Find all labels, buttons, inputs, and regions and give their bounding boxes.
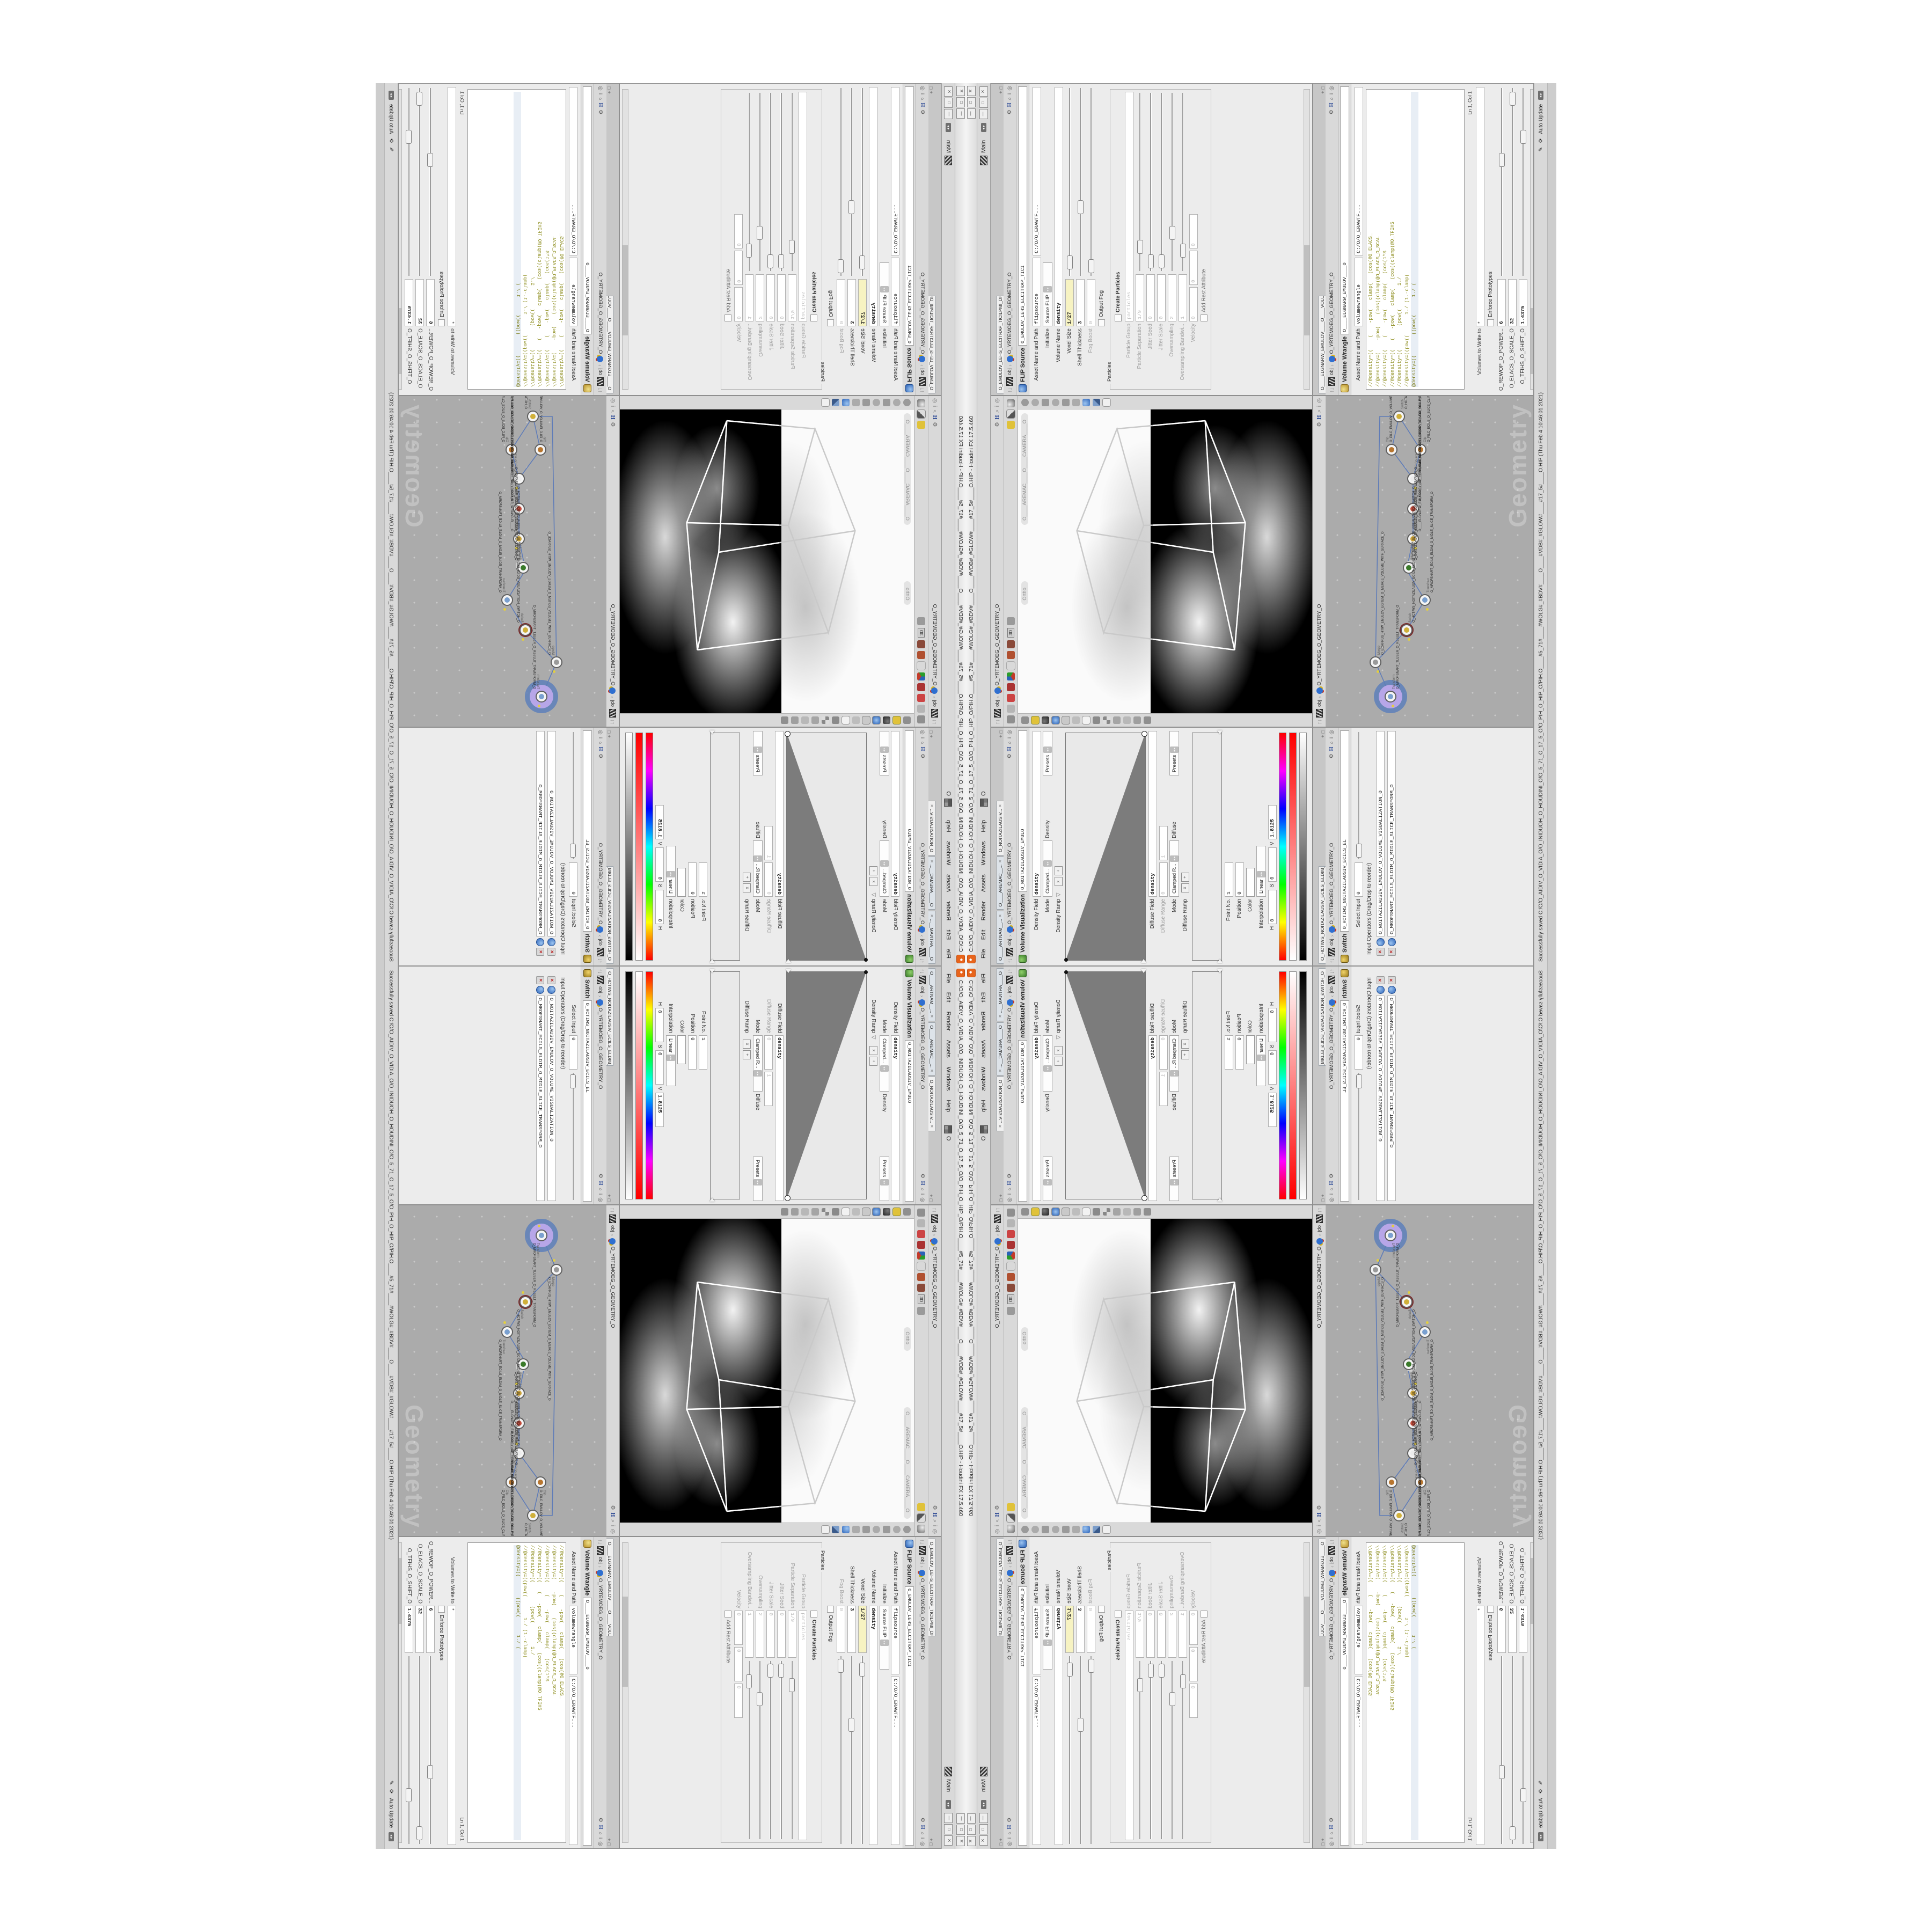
refresh-icon[interactable]: ⟳	[389, 138, 394, 143]
oversampling-bandwidth-input[interactable]: 1	[1179, 1611, 1187, 1658]
asset-path-field[interactable]: C:/O/O_ERAWTF...	[1355, 87, 1363, 255]
node-transform[interactable]	[1419, 594, 1431, 606]
node-flag[interactable]	[1408, 638, 1410, 641]
saturation-gradient-slider[interactable]	[635, 971, 643, 1199]
oversampling-input[interactable]: 2	[756, 274, 765, 321]
network-canvas[interactable]: Geometry	[1326, 1205, 1533, 1536]
menu-scroll-chip[interactable]: ◂ ▸	[946, 1800, 951, 1809]
oversampling-slider[interactable]	[757, 1660, 764, 1840]
display-option-icon[interactable]	[1031, 1526, 1039, 1533]
restore-button[interactable]: □	[956, 1825, 965, 1835]
density-ramp-widget[interactable]	[1065, 971, 1146, 1199]
gear-icon[interactable]: ⚙	[1007, 1174, 1013, 1179]
select-arrow-icon[interactable]	[917, 617, 925, 625]
houdini-help-icon[interactable]: H	[919, 103, 925, 107]
info-icon[interactable]: i	[932, 1525, 938, 1526]
asset-path-field[interactable]: C:/O/O_ERAWTF...	[569, 87, 578, 255]
pane-split-icon[interactable]: +	[998, 91, 1004, 93]
oversampling-slider[interactable]	[1168, 1660, 1176, 1840]
node-name-field[interactable]: O_HCTIWS_NOITAZILAUSIV_ECILS_EL	[1340, 1000, 1349, 1202]
power-slider[interactable]	[1498, 87, 1505, 277]
particle-group-input[interactable]: particles	[799, 92, 808, 321]
status-scroll-chip[interactable]: ◂ ▸	[1538, 91, 1543, 100]
velocity-x-input[interactable]: 0	[735, 1611, 743, 1645]
gear-icon[interactable]: ⚙	[1329, 1818, 1335, 1823]
saturation-input[interactable]: 0	[1268, 847, 1277, 882]
target-icon[interactable]: ◎	[597, 1841, 603, 1846]
particle-separation-slider[interactable]	[789, 92, 796, 272]
blocks-icon[interactable]	[801, 1208, 809, 1216]
pen-icon[interactable]	[1144, 1208, 1151, 1216]
tab-visualization[interactable]: O_NOITAZILAUSIV...✕	[928, 801, 935, 855]
search-icon[interactable]: ⌕	[1329, 1832, 1335, 1835]
node-merge[interactable]	[551, 1264, 562, 1276]
breadcrumb[interactable]: O_YRTEMOEG_O_GEOMETRY_O	[919, 273, 925, 354]
pane-split-icon[interactable]: +	[928, 91, 934, 93]
enforce-prototypes-checkbox[interactable]	[1487, 319, 1494, 326]
frame-icon[interactable]	[822, 1526, 829, 1533]
display-option-icon[interactable]	[903, 399, 911, 406]
node-transform[interactable]	[501, 594, 513, 606]
density-mode-dropdown[interactable]: Clamped...◂ ▸	[1043, 840, 1052, 897]
tab-close-icon[interactable]: ✕	[930, 860, 934, 863]
pin-arrows-icon[interactable]: ↑↓	[919, 388, 926, 393]
power-input[interactable]: 6	[1497, 279, 1506, 326]
point-no-input[interactable]: 1	[699, 1035, 708, 1070]
display-option-icon[interactable]	[862, 1526, 870, 1533]
diffuse-range-max[interactable]: 1	[765, 1072, 773, 1106]
voxel-size-slider[interactable]	[1066, 1655, 1073, 1845]
camera-pill[interactable]: O____AREMAC____O____CAMERA____O	[1021, 1407, 1028, 1519]
breadcrumb[interactable]: O_YRTEMOEG_O_GEOMETRY_O	[610, 604, 616, 686]
view-mode-icon[interactable]	[1052, 716, 1059, 724]
title-bar[interactable]: C:/O/O_AIDIV_O_VIDIA_O/O_INIDUOH_O_HOUDI…	[966, 966, 977, 1849]
houdini-help-icon[interactable]: H	[610, 1513, 616, 1517]
jitter-seed-slider[interactable]	[778, 92, 786, 272]
curve-icon[interactable]	[811, 1208, 819, 1216]
desktop-selector[interactable]: Main	[980, 140, 987, 153]
asset-name-field[interactable]: flipsource	[891, 1606, 900, 1674]
ramp-left-marker[interactable]	[786, 969, 791, 973]
pin-arrows-icon[interactable]: ↑↓	[597, 958, 604, 963]
child-restore-button[interactable]: □	[944, 1824, 953, 1834]
blue-sphere-icon[interactable]	[1082, 1526, 1090, 1533]
minimize-button[interactable]: —	[956, 1813, 965, 1824]
target-icon[interactable]: ◎	[994, 398, 1000, 403]
display-option-icon[interactable]	[1042, 1526, 1049, 1533]
close-button[interactable]: ✕	[956, 1836, 965, 1846]
breadcrumb[interactable]: O_YRTEMOEG_O_GEOMETRY_O	[1329, 843, 1335, 925]
interpolation-dropdown[interactable]: Linear◂ ▸	[666, 846, 676, 897]
rotate-icon[interactable]	[917, 1273, 925, 1281]
node-flag[interactable]	[503, 608, 506, 611]
shading-mode-icon[interactable]	[917, 1514, 925, 1522]
dark-sphere-icon[interactable]	[883, 1208, 890, 1216]
pane-float-icon[interactable]: □	[606, 86, 612, 89]
smooth-shade-icon[interactable]	[1007, 399, 1015, 407]
pan-tool-icon[interactable]	[1007, 705, 1015, 713]
text-abc-icon[interactable]	[852, 716, 860, 724]
asset-name-field[interactable]: flipsource	[1033, 1606, 1041, 1674]
pin-tool-icon[interactable]	[1007, 683, 1015, 691]
diffuse-mode-dropdown[interactable]: Clamped R...◂ ▸	[1169, 840, 1179, 897]
scale-slider[interactable]	[416, 1655, 424, 1845]
particle-separation-slider[interactable]	[1136, 92, 1144, 272]
context-label[interactable]: obj	[1007, 986, 1013, 993]
orbit-icon[interactable]	[1007, 1284, 1015, 1292]
diffuse-mode-dropdown[interactable]: Clamped R...◂ ▸	[753, 1035, 763, 1092]
shell-thickness-input[interactable]: 3	[848, 279, 857, 326]
info-icon[interactable]: i	[597, 93, 603, 94]
particle-separation-input[interactable]: 1/9	[1136, 1611, 1144, 1658]
pen-icon[interactable]	[1144, 716, 1151, 724]
target-icon[interactable]: ◎	[919, 730, 925, 735]
menu-assets[interactable]: Assets	[943, 870, 953, 896]
volumes-to-write-input[interactable]: *	[448, 1606, 457, 1845]
select-tool-icon[interactable]	[1021, 716, 1029, 724]
density-mode-dropdown[interactable]: Clamped...◂ ▸	[1043, 1035, 1052, 1092]
tab-close-icon[interactable]: ✕	[930, 1125, 934, 1128]
node-flag[interactable]	[522, 638, 524, 641]
lasso-shade-icon[interactable]	[1007, 421, 1015, 429]
houdini-help-icon[interactable]: H	[932, 415, 938, 420]
particle-separation-input[interactable]: 1/9	[788, 274, 797, 321]
network-canvas[interactable]: Geometry	[1326, 396, 1533, 727]
menu-render[interactable]: Render	[979, 897, 989, 925]
network-canvas[interactable]: Geometry	[399, 1205, 606, 1536]
display-option-icon[interactable]	[1031, 399, 1039, 406]
display-option-icon[interactable]	[852, 399, 860, 406]
density-presets-dropdown[interactable]: Presets◂ ▸	[880, 1157, 889, 1201]
diffuse-range-min[interactable]: 0	[1159, 862, 1168, 897]
camera-pill[interactable]: O____AREMAC____O____CAMERA____O	[1021, 413, 1028, 525]
pane-float-icon[interactable]: □	[928, 730, 934, 733]
diffuse-ramp-widget[interactable]	[1192, 971, 1222, 1199]
tab-visualization[interactable]: O_NOITAZILAUSIV...✕	[997, 801, 1004, 855]
menu-help[interactable]: Help	[943, 816, 953, 837]
breadcrumb[interactable]: O_YRTEMOEG_O_GEOMETRY_O	[1316, 604, 1322, 686]
target-icon[interactable]: ◎	[932, 398, 938, 403]
display-option-icon[interactable]	[1062, 399, 1070, 406]
ramp-right-marker[interactable]	[709, 730, 715, 734]
fog-boost-slider[interactable]	[1087, 1655, 1095, 1845]
tab-mantra[interactable]: O____ARTNAM__...✕	[997, 911, 1004, 964]
search-icon[interactable]: ⌕	[597, 1188, 603, 1191]
houdini-help-icon[interactable]: H	[1007, 1825, 1013, 1829]
info-icon[interactable]: i	[610, 406, 616, 407]
info-icon[interactable]: i	[994, 1525, 1000, 1526]
houdini-help-icon[interactable]: H	[994, 1513, 1000, 1517]
node-flag[interactable]	[1377, 670, 1379, 673]
density-mode-dropdown[interactable]: Clamped...◂ ▸	[880, 1035, 889, 1092]
lasso-shade-icon[interactable]	[917, 421, 925, 429]
view-tool-icon[interactable]	[1007, 1209, 1015, 1217]
breadcrumb[interactable]: O_YRTEMOEG_O_GEOMETRY_O	[1329, 1578, 1335, 1660]
menu-scroll-chip[interactable]: ◂ ▸	[981, 1800, 986, 1809]
close-button[interactable]: ✕	[956, 86, 965, 96]
pen-icon[interactable]	[781, 716, 788, 724]
density-field-input[interactable]: density	[1033, 1035, 1041, 1201]
node-name-field[interactable]: O____ELGNARW_EMULOV____O	[583, 86, 592, 334]
houdini-help-icon[interactable]: H	[1329, 103, 1335, 107]
node-geometry-switch[interactable]	[527, 1510, 539, 1521]
display-option-icon[interactable]	[903, 1526, 911, 1533]
axis-gizmo-icon[interactable]	[917, 1252, 925, 1260]
fog-boost-input[interactable]: 0	[1087, 1606, 1095, 1653]
velocity-y-input[interactable]: 0	[735, 1647, 743, 1681]
menu-edit[interactable]: Edit	[979, 925, 989, 944]
info-icon[interactable]: i	[1316, 1525, 1322, 1526]
voxel-size-input[interactable]: 1/27	[859, 279, 867, 326]
edit-icon[interactable]: ✎	[1538, 147, 1544, 151]
ramp-point-start[interactable]	[1064, 970, 1068, 974]
pane-float-icon[interactable]: □	[1320, 86, 1326, 89]
tab-close-icon[interactable]: ✕	[930, 1015, 934, 1018]
pan-tool-icon[interactable]	[917, 705, 925, 713]
interpolation-dropdown[interactable]: Linear◂ ▸	[1256, 1035, 1266, 1086]
character-icon[interactable]	[1062, 1208, 1070, 1216]
initialize-dropdown[interactable]: Source FLIP◂ ▸	[880, 262, 889, 326]
node-name-field[interactable]: O_NOITAZILAUSIV_EMULO	[905, 730, 914, 892]
restore-button[interactable]: □	[967, 1825, 976, 1835]
edit-icon[interactable]: ✎	[389, 147, 394, 151]
desktop-grid-icon[interactable]	[980, 799, 988, 807]
horizontal-scrollbar[interactable]	[1304, 89, 1310, 390]
jitter-seed-input[interactable]: 0	[1146, 1611, 1155, 1658]
select-input-slider[interactable]	[570, 1072, 577, 1201]
pane-float-icon[interactable]: □	[998, 1843, 1004, 1846]
tab-switch[interactable]: O_HCTIWS_NOITAZILAUSIV_ECILS_ELDIM_O_MID…	[606, 866, 613, 964]
output-fog-checkbox[interactable]	[827, 319, 834, 326]
tab-close-icon[interactable]: ✕	[998, 1125, 1002, 1128]
target-icon[interactable]: ◎	[919, 1841, 925, 1846]
node-merge[interactable]	[1370, 656, 1381, 668]
asset-path-field[interactable]: C:/O/O_ERAWTF...	[569, 1677, 578, 1845]
velocity-x-input[interactable]: 0	[1189, 1611, 1198, 1645]
breadcrumb[interactable]: O_YRTEMOEG_O_GEOMETRY_O	[919, 1008, 925, 1089]
info-icon[interactable]: i	[1007, 737, 1013, 738]
white-square-icon[interactable]	[1082, 716, 1090, 724]
fog-boost-slider[interactable]	[838, 1655, 845, 1845]
position-input[interactable]: 0	[689, 862, 697, 897]
shift-input[interactable]: 1.4375	[405, 1606, 414, 1653]
rotate-icon[interactable]	[1007, 1273, 1015, 1281]
curve-icon[interactable]	[811, 716, 819, 724]
scale-input[interactable]: 32	[1508, 1606, 1517, 1653]
power-slider[interactable]	[1498, 1655, 1505, 1845]
search-icon[interactable]: ⌕	[1316, 1519, 1322, 1523]
houdini-help-icon[interactable]: H	[597, 1181, 603, 1185]
display-option-icon[interactable]	[1021, 399, 1029, 406]
menu-file[interactable]: File	[943, 969, 953, 987]
gear-icon[interactable]: ⚙	[597, 753, 603, 758]
asset-path-field[interactable]: C:/O/O_ERAWTF...	[1033, 1677, 1041, 1845]
pane-split-icon[interactable]: +	[1320, 735, 1326, 737]
tripod-icon[interactable]	[1093, 1208, 1100, 1216]
pane-split-icon[interactable]: +	[998, 1194, 1004, 1197]
voxel-size-slider[interactable]	[1066, 87, 1073, 277]
tripod-icon[interactable]	[832, 1208, 839, 1216]
asset-path-field[interactable]: C:/O/O_ERAWTF...	[1355, 1677, 1363, 1845]
ramp-point-end[interactable]	[785, 1195, 791, 1201]
gear-icon[interactable]: ⚙	[919, 1818, 925, 1823]
select-tool-icon[interactable]	[903, 716, 911, 724]
initialize-dropdown[interactable]: Source FLIP◂ ▸	[1043, 1606, 1052, 1670]
pin-arrows-icon[interactable]: ↑↓	[919, 1539, 926, 1544]
saturation-input[interactable]: 0	[1268, 1050, 1277, 1085]
operator-pick-icon[interactable]	[1388, 986, 1396, 994]
pen-icon[interactable]	[781, 1208, 788, 1216]
breadcrumb[interactable]: O_YRTEMOEG_O_GEOMETRY_O	[994, 604, 1000, 686]
power-slider[interactable]	[427, 1655, 435, 1845]
key-icon[interactable]	[791, 716, 799, 724]
checker-icon[interactable]	[1103, 1208, 1110, 1216]
enforce-prototypes-checkbox[interactable]	[438, 319, 445, 326]
blue-sphere-icon[interactable]	[1082, 399, 1090, 406]
auto-update-selector[interactable]: Auto Update	[1538, 1798, 1544, 1828]
pane-float-icon[interactable]: □	[928, 1199, 934, 1202]
shell-thickness-input[interactable]: 3	[848, 1606, 857, 1653]
orbit-icon[interactable]	[917, 1284, 925, 1292]
checker-icon[interactable]	[822, 1208, 829, 1216]
pane-float-icon[interactable]: □	[606, 1199, 612, 1202]
tab-volume-wrangle[interactable]: O____ELGNARW_EMULOV____O____VOLUME_WRANG…	[1319, 1539, 1326, 1636]
node-geometry-switch[interactable]	[527, 411, 539, 422]
status-scroll-chip[interactable]: ◂ ▸	[389, 1832, 394, 1841]
vex-snippet-editor[interactable]: //@density=(( ( -pow( clamp( (cos(@O_ELA…	[467, 89, 566, 390]
select-input-slider[interactable]	[1355, 731, 1363, 860]
search-icon[interactable]: ⌕	[932, 1519, 938, 1523]
title-bar[interactable]: C:/O/O_AIDIV_O_VIDIA_O/O_INIDUOH_O_HOUDI…	[955, 83, 966, 966]
lasso-shade-icon[interactable]	[917, 1503, 925, 1511]
info-icon[interactable]: i	[597, 737, 603, 738]
ramp-delete-point-button[interactable]: x	[743, 1040, 751, 1049]
tripod-icon[interactable]	[1093, 716, 1100, 724]
menu-file[interactable]: File	[979, 969, 989, 987]
node-flag[interactable]	[538, 705, 540, 707]
key-icon[interactable]	[1133, 1208, 1141, 1216]
breadcrumb[interactable]: O_YRTEMOEG_O_GEOMETRY_O	[1007, 843, 1013, 925]
shell-thickness-input[interactable]: 3	[1076, 1606, 1085, 1653]
pin-tool-icon[interactable]	[917, 1241, 925, 1249]
blue-cube-icon[interactable]	[832, 1526, 839, 1533]
search-icon[interactable]: ⌕	[1007, 1832, 1013, 1835]
power-input[interactable]: 6	[427, 279, 435, 326]
dark-sphere-icon[interactable]	[883, 716, 890, 724]
menu-file[interactable]: File	[943, 945, 953, 963]
text-abc-icon[interactable]	[852, 1208, 860, 1216]
diffuse-presets-dropdown[interactable]: Presets◂ ▸	[1169, 1157, 1179, 1201]
voxel-size-slider[interactable]	[859, 87, 867, 277]
display-option-icon[interactable]	[1052, 1526, 1059, 1533]
hue-input[interactable]: 0	[1268, 890, 1277, 924]
oversampling-bandwidth-slider[interactable]	[1179, 92, 1187, 272]
desktop-grid-icon[interactable]	[945, 1125, 953, 1133]
menu-windows[interactable]: Windows	[943, 1063, 953, 1095]
info-icon[interactable]: i	[1007, 93, 1013, 94]
pin-arrows-icon[interactable]: ↑↓	[1007, 388, 1013, 393]
value-input[interactable]: 1.8125	[1268, 805, 1277, 839]
status-scroll-chip[interactable]: ◂ ▸	[1538, 1832, 1543, 1841]
scale-slider[interactable]	[1509, 1655, 1516, 1845]
search-icon[interactable]: ⌕	[919, 741, 925, 744]
input-operator-field[interactable]: O_MROFSNART_ECILS_ELDIM_O_MIDLE_SLICE_TR…	[1387, 731, 1396, 936]
shading-mode-icon[interactable]	[1007, 1514, 1015, 1522]
pan-tool-icon[interactable]	[917, 1219, 925, 1227]
value-input[interactable]: 1.8125	[656, 805, 664, 839]
volume-name-input[interactable]: density	[1055, 87, 1063, 326]
key-icon[interactable]	[791, 1208, 799, 1216]
diffuse-presets-dropdown[interactable]: Presets◂ ▸	[753, 731, 763, 775]
tab-close-icon[interactable]: ✕	[998, 860, 1002, 863]
ramp-point-end[interactable]	[785, 731, 791, 737]
hue-input[interactable]: 0	[1268, 1008, 1277, 1042]
text-abc-icon[interactable]	[1072, 716, 1080, 724]
scale-input[interactable]: 32	[416, 279, 425, 326]
node-switch[interactable]	[519, 624, 531, 636]
pose-tool-icon[interactable]	[917, 1230, 925, 1238]
node-merge[interactable]	[1370, 1264, 1381, 1276]
velocity-y-input[interactable]: 0	[1189, 251, 1198, 285]
gear-icon[interactable]: ⚙	[994, 422, 1000, 427]
tab-mantra[interactable]: O____ARTNAM__...✕	[928, 911, 935, 964]
velocity-y-input[interactable]: 0	[735, 251, 743, 285]
color-swatch[interactable]	[1246, 868, 1255, 897]
tab-volume-wrangle[interactable]: O____ELGNARW_EMULOV____O____VOLUME_WRANG…	[606, 1539, 613, 1636]
menu-edit[interactable]: Edit	[943, 925, 953, 944]
menu-render[interactable]: Render	[943, 897, 953, 925]
target-icon[interactable]: ◎	[610, 1529, 616, 1534]
diffuse-field-input[interactable]: density	[1148, 1035, 1157, 1201]
ramp-collapse-icon[interactable]: ▽	[870, 1035, 876, 1040]
node-name-field[interactable]: O_NOITAZILAUSIV_EMULO	[1018, 730, 1027, 892]
search-icon[interactable]: ⌕	[994, 409, 1000, 413]
add-rest-checkbox[interactable]	[1201, 314, 1207, 321]
ramp-point-start[interactable]	[864, 970, 868, 974]
node-clip-1[interactable]	[1386, 444, 1397, 456]
pin-arrows-icon[interactable]: ↑↓	[597, 1539, 604, 1544]
asset-name-field[interactable]: volumewrangle	[1355, 258, 1363, 326]
ortho-pill[interactable]: Ortho	[904, 581, 911, 605]
search-icon[interactable]: ⌕	[1329, 1188, 1335, 1191]
pin-arrows-icon[interactable]: ↑↓	[610, 720, 616, 724]
ramp-delete-point-button[interactable]: x	[1055, 1046, 1063, 1055]
tab-flip-source[interactable]: O_EMULOV_LEHS_ELCITRAP_TICILPMI_DIULF_O_…	[928, 296, 935, 393]
axis-gizmo-icon[interactable]	[1007, 672, 1015, 680]
desktop-grid-icon[interactable]	[980, 1125, 988, 1133]
asset-path-field[interactable]: C:/O/O_ERAWTF...	[891, 1677, 900, 1845]
jitter-scale-input[interactable]: 0	[1157, 274, 1166, 321]
value-gradient-slider[interactable]	[1299, 733, 1307, 961]
enforce-prototypes-checkbox[interactable]	[438, 1606, 445, 1613]
ramp-add-point-button[interactable]: +	[869, 866, 877, 875]
pin-arrows-icon[interactable]: ↑↓	[1329, 1539, 1335, 1544]
shading-mode-icon[interactable]	[1007, 410, 1015, 418]
ramp-add-point-button[interactable]: +	[743, 873, 751, 882]
tab-close-icon[interactable]: ✕	[930, 1069, 934, 1072]
remove-input-button[interactable]: ✕	[548, 976, 556, 984]
jitter-seed-slider[interactable]	[1147, 92, 1154, 272]
info-icon[interactable]: i	[932, 406, 938, 407]
volume-name-input[interactable]: density	[1055, 1606, 1063, 1845]
breadcrumb[interactable]: O_YRTEMOEG_O_GEOMETRY_O	[994, 1247, 1000, 1328]
remove-input-button[interactable]: ✕	[1388, 948, 1396, 956]
target-icon[interactable]: ◎	[1329, 86, 1335, 91]
menu-scroll-chip[interactable]: ◂ ▸	[981, 123, 986, 132]
info-icon[interactable]: i	[919, 1194, 925, 1195]
desktop-selector[interactable]: Main	[980, 1779, 987, 1792]
shift-input[interactable]: 1.4375	[405, 279, 414, 326]
